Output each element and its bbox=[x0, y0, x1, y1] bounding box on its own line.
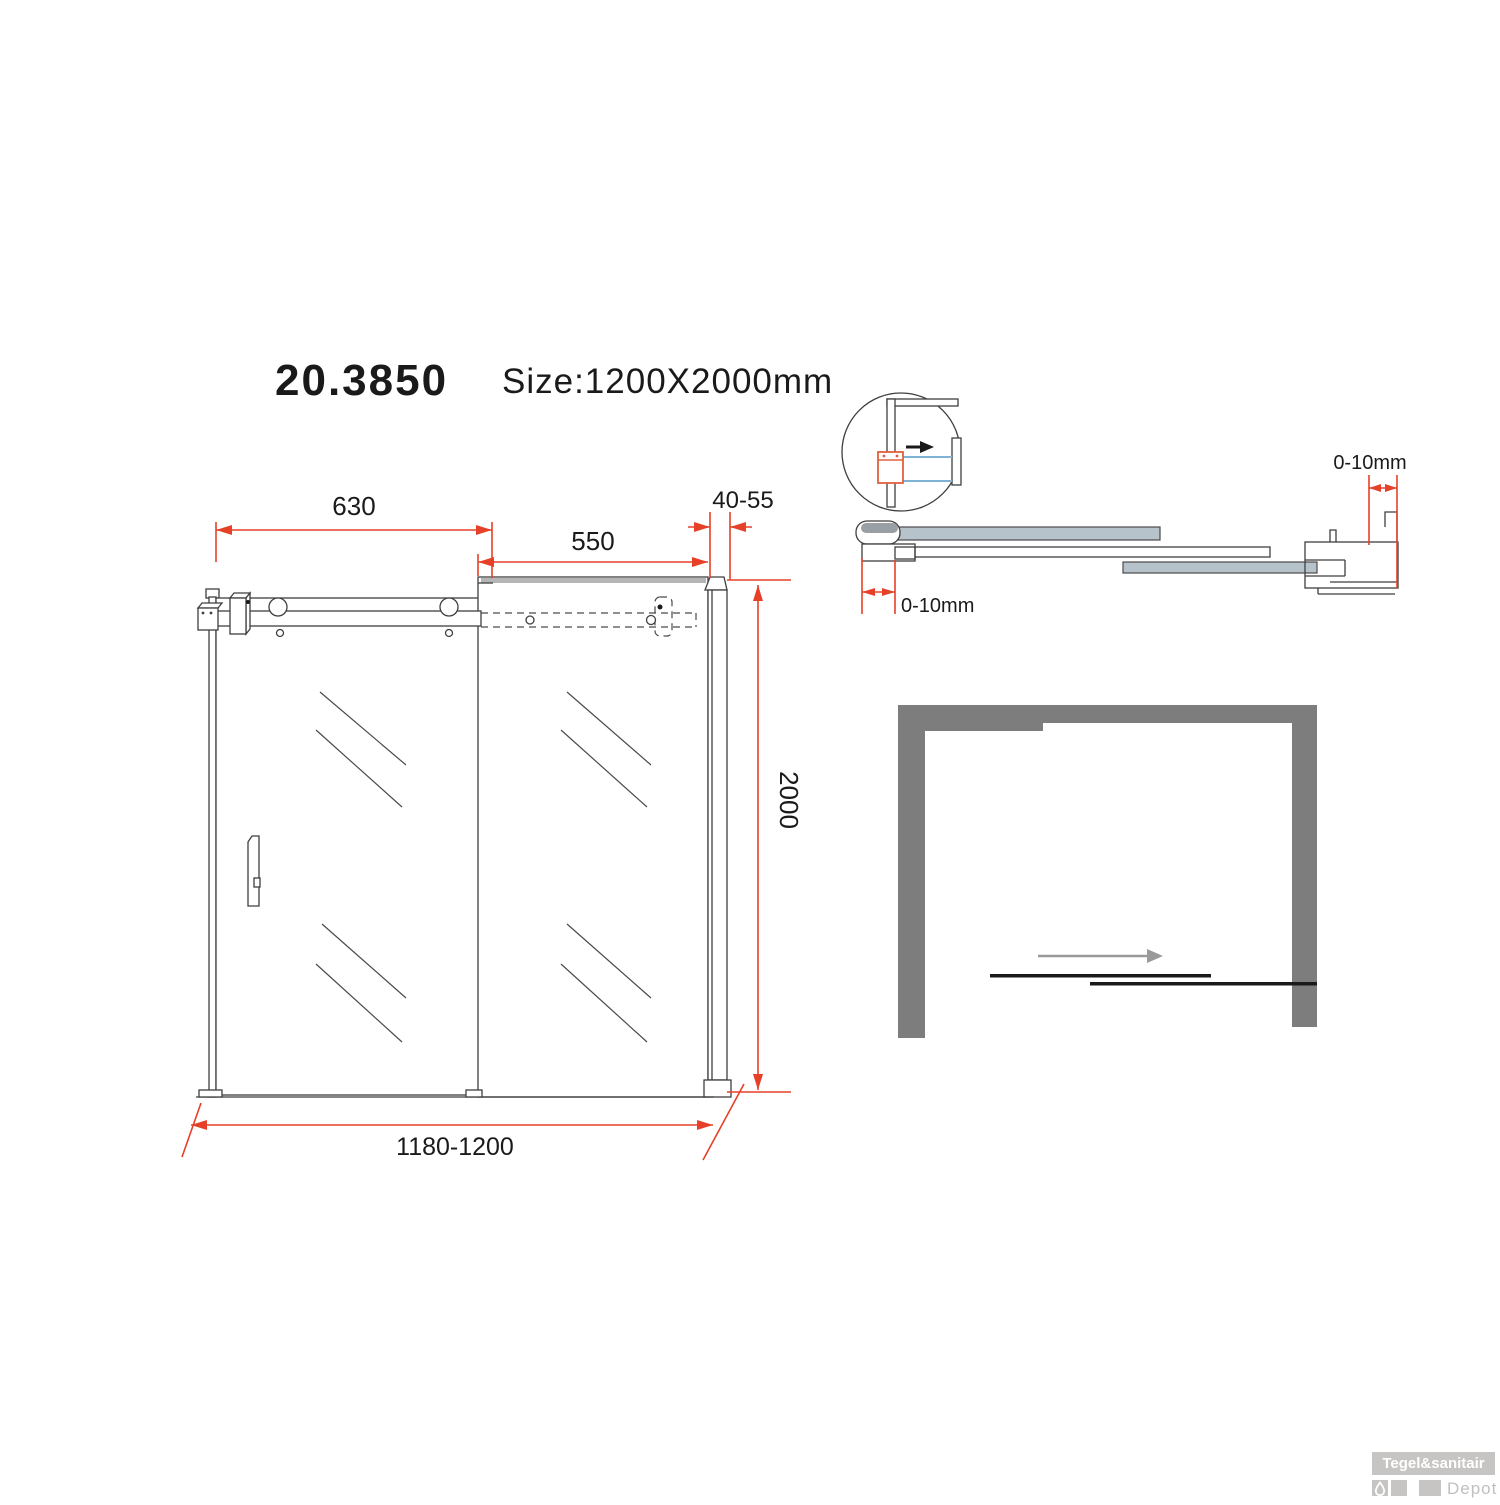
support-bracket bbox=[230, 598, 246, 634]
bracket-screw-dot bbox=[210, 612, 213, 615]
logo-square-drop bbox=[1372, 1480, 1388, 1496]
hidden-bracket-bolt bbox=[658, 605, 663, 610]
dim-630: 630 bbox=[216, 491, 492, 578]
rail-screw-right bbox=[446, 630, 453, 637]
detail-clamp-dot bbox=[883, 455, 886, 458]
model-number: 20.3850 bbox=[275, 356, 448, 405]
plan-sliding-panel bbox=[990, 974, 1211, 978]
rail-screw-left bbox=[277, 630, 284, 637]
technical-drawing-page: 20.3850 Size:1200X2000mm bbox=[0, 0, 1500, 1500]
left-wall-profile bbox=[209, 597, 216, 1097]
dim-2000: 2000 bbox=[727, 580, 804, 1092]
wall-bracket-top bbox=[198, 603, 222, 608]
section-fixed-glass bbox=[1123, 562, 1317, 573]
water-drop-icon bbox=[1372, 1480, 1388, 1496]
dim-gap-right-label: 0-10mm bbox=[1333, 452, 1406, 474]
plan-top-wall-step bbox=[898, 723, 1043, 731]
plan-slide-arrow-icon bbox=[1147, 949, 1163, 963]
logo-brand-bar: Tegel&sanitair bbox=[1372, 1452, 1495, 1475]
logo-square bbox=[1391, 1480, 1407, 1496]
roller-wheel-left bbox=[269, 598, 287, 616]
detail-circle bbox=[842, 393, 961, 511]
section-wall-profile bbox=[1305, 512, 1398, 594]
dim-gap-left-label: 0-10mm bbox=[901, 595, 974, 617]
dim-40-55-label: 40-55 bbox=[712, 487, 773, 514]
size-label: Size:1200X2000mm bbox=[502, 362, 833, 401]
right-wall-profile bbox=[708, 590, 727, 1080]
wall-bracket bbox=[198, 608, 218, 630]
plan-right-wall bbox=[1292, 705, 1317, 1027]
handle-mount bbox=[254, 878, 260, 887]
bracket-bolt bbox=[246, 600, 250, 604]
detail-clamp-bracket bbox=[878, 452, 903, 483]
right-profile-foot bbox=[704, 1080, 731, 1097]
section-sliding-glass bbox=[875, 527, 1160, 540]
hidden-rail-screw bbox=[647, 616, 656, 625]
bracket-screw-dot bbox=[202, 612, 205, 615]
dim-gap-right: 0-10mm bbox=[1333, 452, 1406, 588]
dim-550: 550 bbox=[478, 526, 708, 576]
hidden-rail-screw bbox=[526, 616, 534, 624]
section-roller-cap-top bbox=[861, 523, 898, 533]
dim-630-label: 630 bbox=[332, 491, 375, 521]
handle-body bbox=[248, 836, 259, 906]
door-foot-left bbox=[199, 1090, 222, 1097]
dim-1180-1200-label: 1180-1200 bbox=[396, 1133, 514, 1161]
logo-square bbox=[1419, 1480, 1441, 1496]
shower-door-diagram: 20.3850 Size:1200X2000mm bbox=[0, 0, 1500, 1500]
fixed-glass-panel bbox=[478, 577, 708, 1097]
dim-550-label: 550 bbox=[571, 526, 614, 556]
fixed-panel-top-face bbox=[481, 578, 706, 583]
detail-clamp-dot bbox=[896, 455, 899, 458]
dim-40-55: 40-55 bbox=[688, 487, 774, 580]
dim-2000-label: 2000 bbox=[774, 771, 804, 829]
logo-subbrand: Depot bbox=[1447, 1479, 1497, 1499]
roller-wheel-right bbox=[440, 598, 458, 616]
dim-gap-left: 0-10mm bbox=[862, 558, 974, 617]
plan-fixed-panel bbox=[1090, 982, 1317, 986]
plan-top-wall bbox=[898, 705, 1317, 723]
front-view bbox=[196, 577, 731, 1097]
plan-left-wall bbox=[898, 705, 925, 1038]
detail-top-profile bbox=[887, 399, 958, 406]
slide-rail-bar bbox=[212, 611, 481, 626]
plan-view bbox=[898, 705, 1317, 1038]
door-foot-middle bbox=[466, 1090, 482, 1097]
door-handle bbox=[248, 836, 260, 906]
detail-rail-end bbox=[952, 438, 961, 485]
section-rail-bar bbox=[897, 547, 1270, 557]
